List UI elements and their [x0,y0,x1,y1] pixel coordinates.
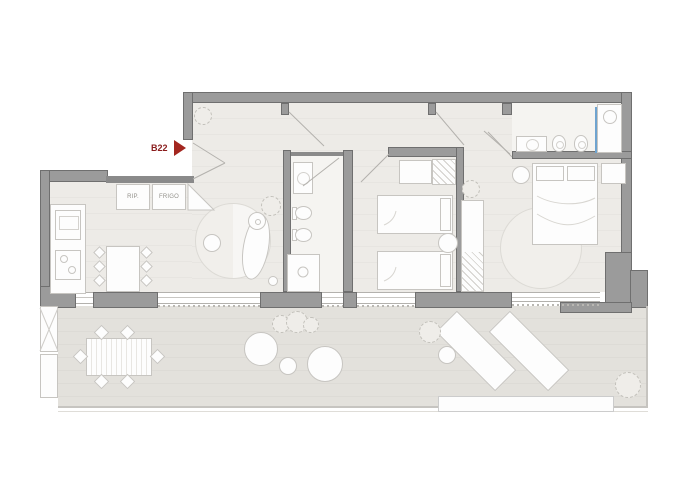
wall-stub-ensuite [502,103,512,115]
ensuite-shower-head [603,110,617,124]
master-pillow-right [567,166,595,181]
outer-wall-top [183,92,632,103]
hob-burner-1 [60,255,68,263]
window-living-room [158,292,260,304]
wall-step-thin [106,176,194,183]
bedroom2-bed-1-pillow [440,198,451,231]
bottom-wall-2 [260,292,322,308]
bathroom1-wall-top [291,152,343,156]
floor-lamp [268,276,278,286]
bottom-wall-1 [93,292,158,308]
window-master-bedroom [512,292,600,302]
corner-bottom-right-a [605,252,632,308]
ensuite-bidet-drain [578,141,586,149]
terrace-edge-right [646,306,648,408]
master-wardrobe-hatch [462,252,483,291]
bottom-wall-3 [343,292,357,308]
floor-plan-canvas: RIP. FRIGO [0,0,700,500]
corner-bottom-right-b [630,270,648,308]
bathroom1-bidet [295,228,312,242]
bedroom2-wall-top [388,147,458,157]
ensuite-shower-glass [595,107,597,153]
terrace-plant-cluster-3 [303,317,319,333]
chaise-button [255,219,261,225]
bathroom1-wall-right [343,150,353,292]
storage-cabinet-label: RIP. [116,194,150,200]
wall-stub-1 [281,103,289,115]
terrace-parapet [560,302,632,313]
entry-plant [194,107,212,125]
master-nightstand-right [601,163,626,184]
unit-label: B22 [151,143,168,153]
hob-burner-2 [68,266,76,274]
window-bedroom-2 [357,292,415,304]
terrace-planter-box [438,396,614,412]
terrace-pouf-large-2 [307,346,343,382]
outer-wall-entry [183,92,193,140]
bathroom1-toilet [295,206,312,220]
coffee-table [203,234,221,252]
kitchen-sink-basin [59,216,79,230]
master-nightstand-left [512,166,530,184]
wall-step-thick [40,170,108,182]
wall-stub-2 [428,103,436,115]
master-plant [462,180,480,198]
bottom-wall-4 [415,292,512,308]
fridge-cabinet-label: FRIGO [152,194,186,200]
bathroom1-basin [297,172,310,185]
terrace-plant-right [615,372,641,398]
living-room-plant [261,196,281,216]
terrace-glass-panel [40,306,58,352]
bedroom2-wardrobe [432,159,456,185]
bathroom1-shower [287,254,320,292]
entry-arrow-icon [174,140,186,156]
bedroom2-bed-2-pillow [440,254,451,287]
terrace-plant-left [419,321,441,343]
terrace-dining-table [86,338,152,376]
master-pillow-left [536,166,564,181]
ensuite-basin [526,139,539,151]
ensuite-toilet-seat [556,141,564,149]
outer-wall-left [40,170,50,300]
lounger-side-table [438,346,456,364]
kitchen-hob [55,250,81,280]
terrace-pouf-large-1 [244,332,278,366]
terrace-pouf-small [279,357,297,375]
window-bathroom-1 [322,292,343,304]
bedroom2-desk [399,160,432,184]
terrace-side-panel [40,354,58,398]
bedroom2-side-table [438,233,458,253]
kitchen-island [106,246,140,292]
